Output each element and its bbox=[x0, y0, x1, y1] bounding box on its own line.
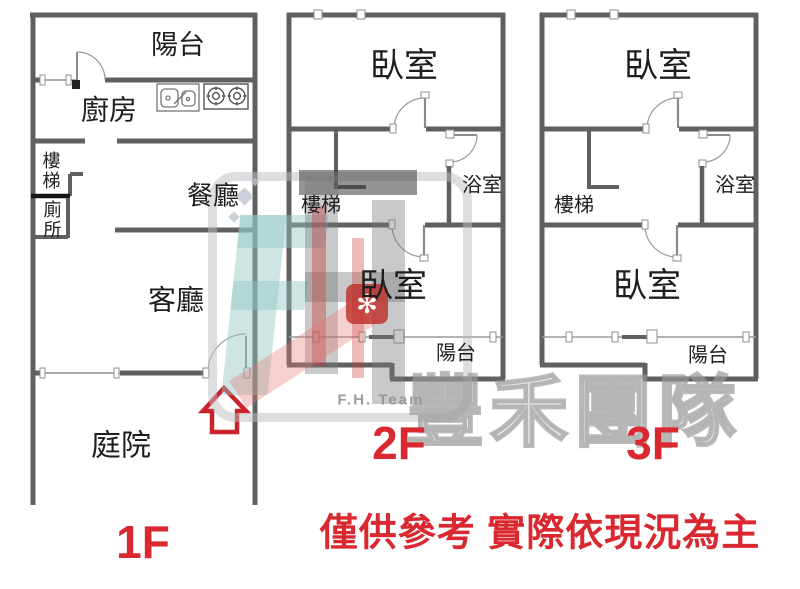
room-label-stairs-2f: 樓梯 bbox=[301, 196, 341, 217]
entrance-door-arc bbox=[203, 334, 250, 378]
floor-tag-3f: 3F bbox=[626, 416, 680, 470]
room-label-kitchen-1f: 廚房 bbox=[81, 96, 137, 125]
floor-tag-1f: 1F bbox=[116, 515, 170, 569]
bedroom-door-arc bbox=[389, 220, 428, 261]
disclaimer-text: 僅供參考 實際依現況為主 bbox=[320, 502, 761, 557]
room-label-bedroom-top-3f: 臥室 bbox=[624, 49, 692, 85]
bedroom-door-arc bbox=[390, 92, 429, 133]
room-label-stairs-3f: 樓梯 bbox=[554, 196, 594, 217]
room-label-balcony-1f: 陽台 bbox=[151, 31, 205, 59]
room-label-bedroom-top-2f: 臥室 bbox=[370, 49, 438, 85]
room-label-balcony-3f: 陽台 bbox=[688, 346, 728, 367]
room-label-balcony-2f: 陽台 bbox=[436, 344, 476, 365]
room-label-dining-1f: 餐廳 bbox=[187, 182, 239, 209]
room-label-living-1f: 客廳 bbox=[148, 286, 204, 315]
room-label-bathroom-3f: 浴室 bbox=[715, 176, 755, 197]
floor-tag-2f: 2F bbox=[372, 416, 426, 470]
room-label-stairs-1f: 樓梯 bbox=[41, 151, 60, 191]
room-label-courtyard-1f: 庭院 bbox=[91, 430, 151, 462]
floorplan-image: ✻ F.H. Team 豐禾團隊 陽台 廚房 樓梯 廁所 餐廳 客廳 庭院 臥室… bbox=[0, 0, 800, 589]
room-label-toilet-1f: 廁所 bbox=[42, 200, 61, 240]
sink-icon bbox=[157, 84, 199, 111]
entrance-arrow-icon bbox=[203, 388, 246, 432]
stove-icon bbox=[204, 84, 248, 109]
room-label-bathroom-2f: 浴室 bbox=[462, 176, 502, 197]
bathroom-door-arc bbox=[446, 130, 477, 167]
room-label-bedroom-bottom-2f: 臥室 bbox=[359, 269, 427, 305]
balcony-door-arc bbox=[72, 52, 105, 89]
room-label-bedroom-bottom-3f: 臥室 bbox=[613, 269, 681, 305]
